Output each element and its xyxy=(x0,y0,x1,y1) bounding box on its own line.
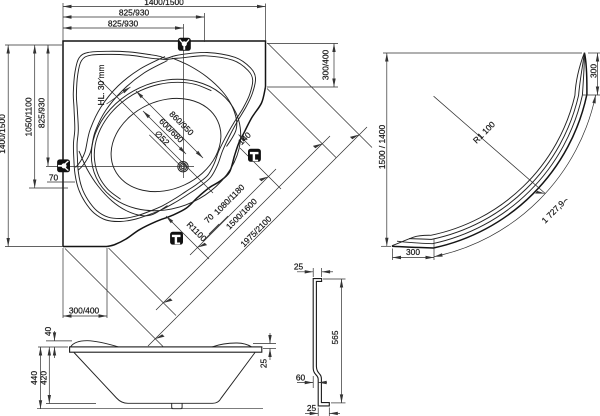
svg-text:300/400: 300/400 xyxy=(69,306,100,316)
svg-text:25: 25 xyxy=(294,261,304,271)
svg-text:825/930: 825/930 xyxy=(108,19,139,29)
svg-text:40: 40 xyxy=(43,327,53,337)
svg-text:1400/1500: 1400/1500 xyxy=(144,0,184,7)
svg-text:60: 60 xyxy=(296,372,306,382)
svg-text:25: 25 xyxy=(259,359,269,369)
svg-text:HL. 30 mm: HL. 30 mm xyxy=(96,65,106,106)
svg-text:1400/1500: 1400/1500 xyxy=(0,114,7,154)
svg-text:825/930: 825/930 xyxy=(37,98,47,129)
svg-text:825/930: 825/930 xyxy=(119,8,150,18)
svg-text:440: 440 xyxy=(29,371,39,385)
svg-text:1050/1100: 1050/1100 xyxy=(23,97,33,136)
svg-text:70: 70 xyxy=(49,173,59,183)
svg-text:300: 300 xyxy=(406,247,420,257)
svg-text:300: 300 xyxy=(589,64,599,78)
svg-text:420: 420 xyxy=(38,371,48,385)
svg-text:1500 / 1400: 1500 / 1400 xyxy=(377,125,387,170)
svg-text:25: 25 xyxy=(307,403,317,413)
svg-text:565: 565 xyxy=(330,330,340,344)
svg-text:300/400: 300/400 xyxy=(320,50,330,81)
